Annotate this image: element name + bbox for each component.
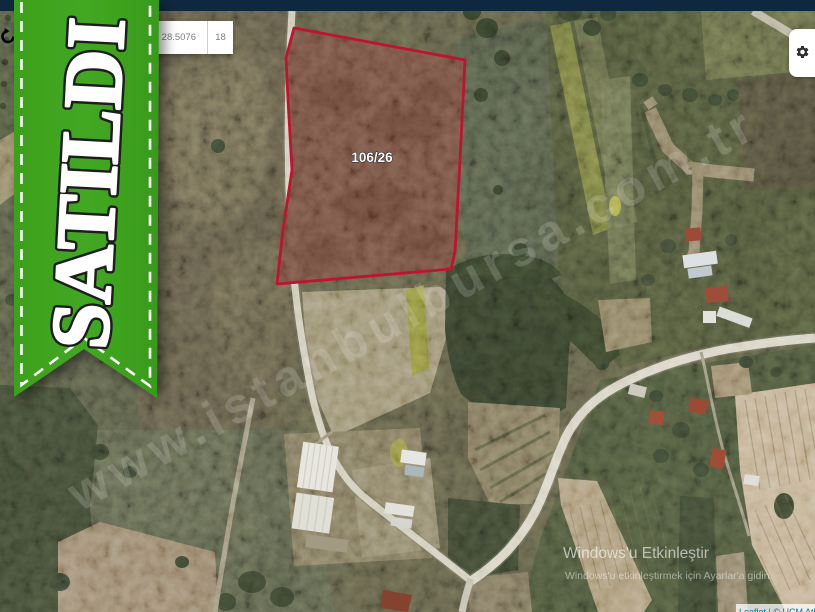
svg-text:106/26: 106/26 (351, 150, 393, 165)
svg-text:Windows'u Etkinleştir: Windows'u Etkinleştir (563, 545, 709, 562)
svg-text:SATILDI: SATILDI (34, 15, 142, 350)
svg-text:Windows'u etkinleştirmek için: Windows'u etkinleştirmek için Ayarlar'a … (565, 570, 772, 582)
